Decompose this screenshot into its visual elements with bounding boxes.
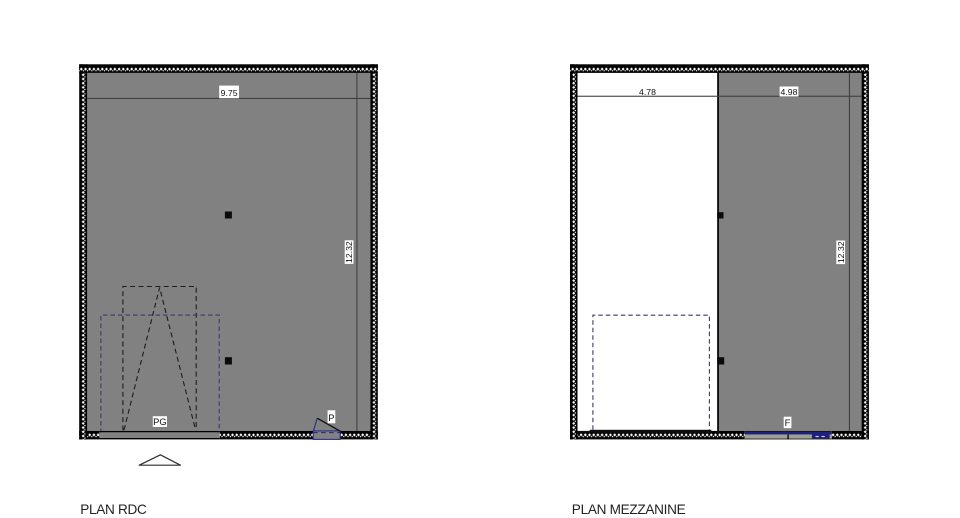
svg-text:F: F <box>785 418 791 428</box>
svg-text:12.32: 12.32 <box>344 241 354 263</box>
svg-text:PLAN MEZZANINE: PLAN MEZZANINE <box>572 502 686 517</box>
svg-text:9.75: 9.75 <box>221 88 238 98</box>
svg-text:4.78: 4.78 <box>639 87 656 97</box>
svg-text:12.32: 12.32 <box>836 241 846 263</box>
svg-text:P: P <box>328 413 334 423</box>
svg-text:4.98: 4.98 <box>781 87 798 97</box>
svg-text:PG: PG <box>153 417 166 427</box>
svg-text:PLAN RDC: PLAN RDC <box>80 502 147 517</box>
